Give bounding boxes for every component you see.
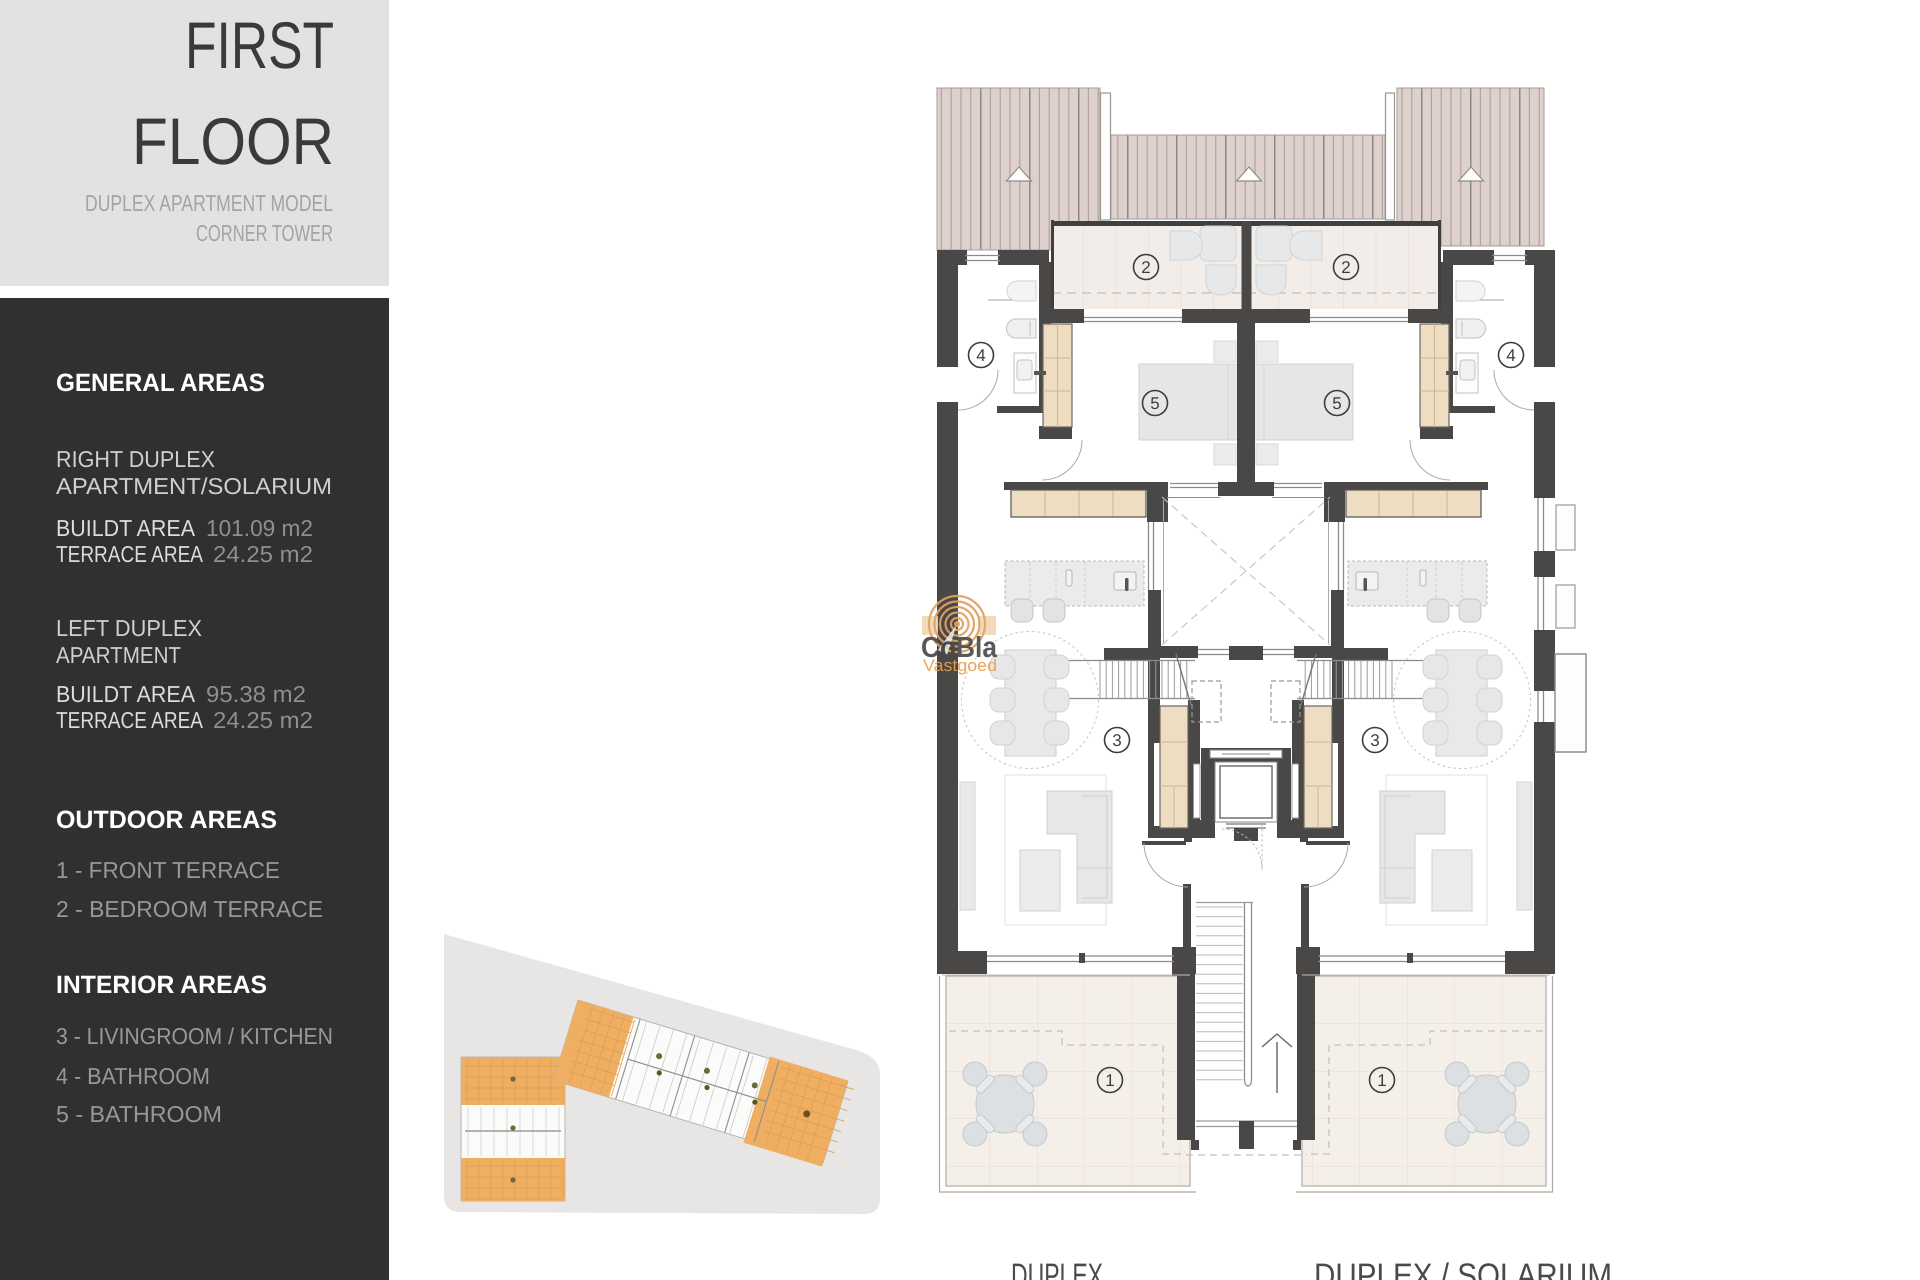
svg-text:1: 1 xyxy=(1377,1071,1386,1090)
svg-text:TERRACE AREA: TERRACE AREA xyxy=(56,707,204,733)
svg-text:BUILDT AREA: BUILDT AREA xyxy=(56,681,196,707)
svg-text:DUPLEX: DUPLEX xyxy=(1011,1257,1103,1280)
svg-text:5 - BATHROOM: 5 - BATHROOM xyxy=(56,1101,222,1127)
svg-text:2: 2 xyxy=(1341,258,1350,277)
svg-text:2: 2 xyxy=(1141,258,1150,277)
svg-text:101.09 m2: 101.09 m2 xyxy=(206,515,313,541)
svg-text:24.25 m2: 24.25 m2 xyxy=(213,541,313,567)
svg-text:FIRST: FIRST xyxy=(185,8,334,82)
svg-text:OUTDOOR AREAS: OUTDOOR AREAS xyxy=(56,806,277,834)
svg-text:INTERIOR AREAS: INTERIOR AREAS xyxy=(56,971,267,999)
svg-text:4 - BATHROOM: 4 - BATHROOM xyxy=(56,1063,210,1089)
svg-text:APARTMENT/SOLARIUM: APARTMENT/SOLARIUM xyxy=(56,473,332,499)
svg-text:24.25 m2: 24.25 m2 xyxy=(213,707,313,733)
svg-text:DUPLEX / SOLARIUM: DUPLEX / SOLARIUM xyxy=(1314,1257,1612,1280)
svg-text:Vastgoed: Vastgoed xyxy=(923,656,997,675)
svg-text:2 - BEDROOM TERRACE: 2 - BEDROOM TERRACE xyxy=(56,896,323,922)
svg-text:BUILDT AREA: BUILDT AREA xyxy=(56,515,196,541)
svg-text:5: 5 xyxy=(1332,394,1341,413)
svg-text:1: 1 xyxy=(1105,1071,1114,1090)
svg-text:DUPLEX APARTMENT MODEL: DUPLEX APARTMENT MODEL xyxy=(85,190,333,216)
svg-text:RIGHT DUPLEX: RIGHT DUPLEX xyxy=(56,446,215,472)
svg-text:5: 5 xyxy=(1150,394,1159,413)
svg-text:3: 3 xyxy=(1370,731,1379,750)
svg-text:TERRACE AREA: TERRACE AREA xyxy=(56,541,204,567)
svg-text:APARTMENT: APARTMENT xyxy=(56,642,181,668)
svg-text:GENERAL AREAS: GENERAL AREAS xyxy=(56,369,265,397)
svg-text:95.38 m2: 95.38 m2 xyxy=(206,681,306,707)
svg-text:3: 3 xyxy=(1112,731,1121,750)
svg-text:FLOOR: FLOOR xyxy=(132,104,334,178)
svg-text:4: 4 xyxy=(1506,346,1515,365)
svg-text:3 - LIVINGROOM / KITCHEN: 3 - LIVINGROOM / KITCHEN xyxy=(56,1023,333,1049)
svg-text:1 - FRONT TERRACE: 1 - FRONT TERRACE xyxy=(56,857,280,883)
svg-text:LEFT DUPLEX: LEFT DUPLEX xyxy=(56,615,202,641)
svg-text:4: 4 xyxy=(976,346,985,365)
svg-text:CORNER TOWER: CORNER TOWER xyxy=(196,220,333,246)
